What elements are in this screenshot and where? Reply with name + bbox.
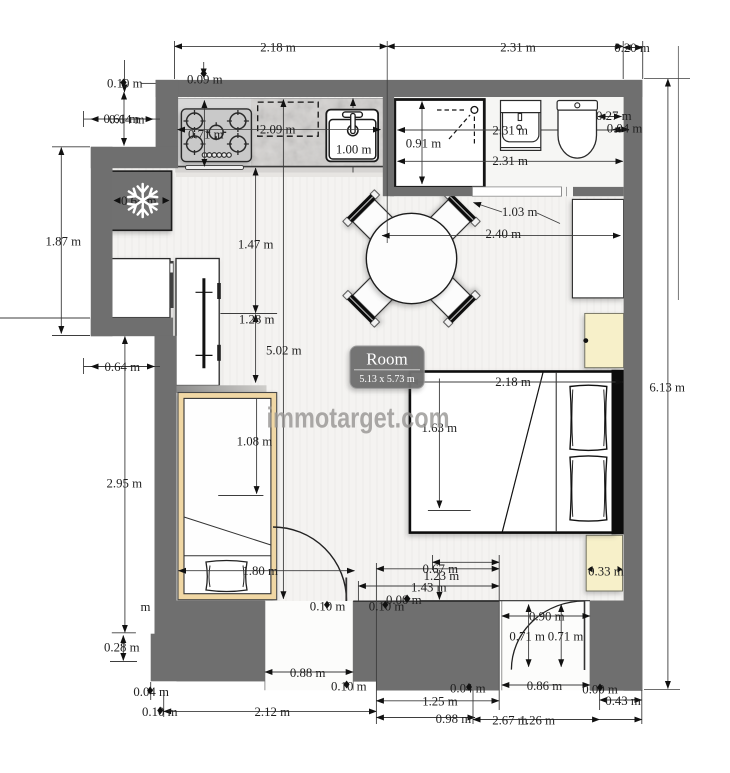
svg-text:1.08 m: 1.08 m [237,435,273,449]
svg-text:1.47 m: 1.47 m [238,238,274,252]
svg-text:0.86 m: 0.86 m [527,679,563,693]
svg-text:0.91 m: 0.91 m [406,137,442,151]
svg-text:0.64 m: 0.64 m [105,360,141,374]
svg-text:2.12 m: 2.12 m [255,705,291,719]
svg-text:0.64 m: 0.64 m [109,112,145,126]
svg-text:0.04 m: 0.04 m [607,122,643,136]
svg-text:2.18 m: 2.18 m [260,41,296,55]
svg-text:m: m [141,600,151,614]
svg-text:0.90 m: 0.90 m [529,610,565,624]
svg-text:1.87 m: 1.87 m [46,235,82,249]
svg-text:0.10 m: 0.10 m [331,680,367,694]
svg-text:0.43 m: 0.43 m [605,694,641,708]
svg-text:6.13 m: 6.13 m [649,381,685,395]
svg-text:2.31 m: 2.31 m [492,154,528,168]
svg-text:2.31 m: 2.31 m [492,124,528,138]
svg-text:1.28 m: 1.28 m [239,313,275,327]
svg-text:0.20 m: 0.20 m [614,41,650,55]
svg-text:2.09 m: 2.09 m [260,123,296,137]
svg-text:2.40 m: 2.40 m [486,227,522,241]
svg-text:1.03 m: 1.03 m [502,205,538,219]
svg-text:0.28 m: 0.28 m [104,641,140,655]
svg-text:1.80 m: 1.80 m [242,564,278,578]
svg-text:1.00 m: 1.00 m [336,143,372,157]
svg-text:5.13 x 5.73 m: 5.13 x 5.73 m [359,374,415,385]
svg-text:1.26 m: 1.26 m [520,714,556,728]
svg-text:1.25 m: 1.25 m [422,695,458,709]
svg-text:immotarget.com: immotarget.com [267,403,450,435]
svg-text:2.95 m: 2.95 m [107,477,143,491]
svg-text:Room: Room [366,350,408,369]
svg-text:0.71 m: 0.71 m [509,630,545,644]
svg-text:5.02 m: 5.02 m [266,344,302,358]
svg-text:0.71 m: 0.71 m [188,128,224,142]
svg-text:2.31 m: 2.31 m [500,41,536,55]
svg-text:0.98 m: 0.98 m [436,712,472,726]
svg-text:0.71 m: 0.71 m [548,630,584,644]
svg-text:0.88 m: 0.88 m [290,666,326,680]
svg-text:2.18 m: 2.18 m [495,375,531,389]
